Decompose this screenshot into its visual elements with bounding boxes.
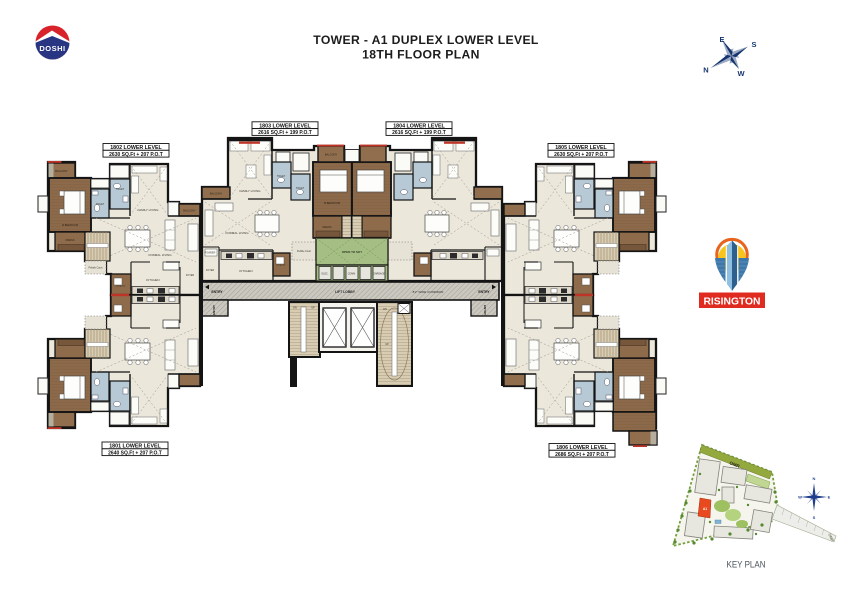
svg-text:TOWER - A1 DUPLEX LOWER LEVEL: TOWER - A1 DUPLEX LOWER LEVEL <box>313 33 539 47</box>
svg-text:W: W <box>798 495 802 500</box>
svg-text:E: E <box>828 495 831 500</box>
svg-text:DOSHI: DOSHI <box>39 44 65 53</box>
svg-text:1802 LOWER LEVEL: 1802 LOWER LEVEL <box>110 145 162 151</box>
svg-text:ENTRY: ENTRY <box>483 305 487 315</box>
svg-text:18TH FLOOR PLAN: 18TH FLOOR PLAN <box>362 48 480 62</box>
svg-text:ENTRY: ENTRY <box>478 290 490 294</box>
svg-text:ENTRY: ENTRY <box>211 290 223 294</box>
svg-text:2630 SQ.Ft + 207 P.O.T: 2630 SQ.Ft + 207 P.O.T <box>554 152 608 158</box>
svg-text:RISINGTON: RISINGTON <box>704 296 761 307</box>
svg-text:2616 SQ.Ft + 199 P.O.T: 2616 SQ.Ft + 199 P.O.T <box>392 130 446 136</box>
svg-text:KEY PLAN: KEY PLAN <box>727 560 766 570</box>
svg-text:UP: UP <box>311 307 315 310</box>
svg-text:2640 SQ.Ft + 207 P.O.T: 2640 SQ.Ft + 207 P.O.T <box>108 450 162 456</box>
svg-text:N: N <box>813 476 816 481</box>
svg-text:OPEN TO SKY: OPEN TO SKY <box>342 250 362 254</box>
svg-text:2686 SQ.Ft + 207 P.O.T: 2686 SQ.Ft + 207 P.O.T <box>555 452 609 458</box>
svg-text:GARBAGE: GARBAGE <box>373 273 385 276</box>
svg-text:DN: DN <box>293 307 297 310</box>
svg-text:1804 LOWER LEVEL: 1804 LOWER LEVEL <box>393 123 445 129</box>
svg-text:N: N <box>703 66 708 75</box>
svg-text:1805 LOWER LEVEL: 1805 LOWER LEVEL <box>555 145 607 151</box>
svg-text:UP: UP <box>385 343 389 346</box>
svg-text:8'2" WIDE CORRIDOR: 8'2" WIDE CORRIDOR <box>413 290 445 294</box>
svg-text:A1: A1 <box>703 507 707 511</box>
svg-text:S: S <box>751 40 756 49</box>
svg-text:2616 SQ.Ft + 199 P.O.T: 2616 SQ.Ft + 199 P.O.T <box>258 130 312 136</box>
svg-text:1806 LOWER LEVEL: 1806 LOWER LEVEL <box>556 445 608 451</box>
svg-text:DN: DN <box>383 308 387 311</box>
svg-text:1803 LOWER LEVEL: 1803 LOWER LEVEL <box>259 123 311 129</box>
svg-text:2630 SQ.Ft + 207 P.O.T: 2630 SQ.Ft + 207 P.O.T <box>109 152 163 158</box>
svg-text:COMM: COMM <box>348 273 356 276</box>
svg-text:W: W <box>737 69 745 78</box>
svg-text:ELEC.: ELEC. <box>322 273 329 276</box>
svg-text:1801 LOWER LEVEL: 1801 LOWER LEVEL <box>109 444 161 450</box>
svg-text:S: S <box>813 515 816 520</box>
svg-text:E: E <box>719 35 724 44</box>
svg-text:ENTRY: ENTRY <box>212 305 216 315</box>
svg-text:LIFT LOBBY: LIFT LOBBY <box>335 290 356 294</box>
